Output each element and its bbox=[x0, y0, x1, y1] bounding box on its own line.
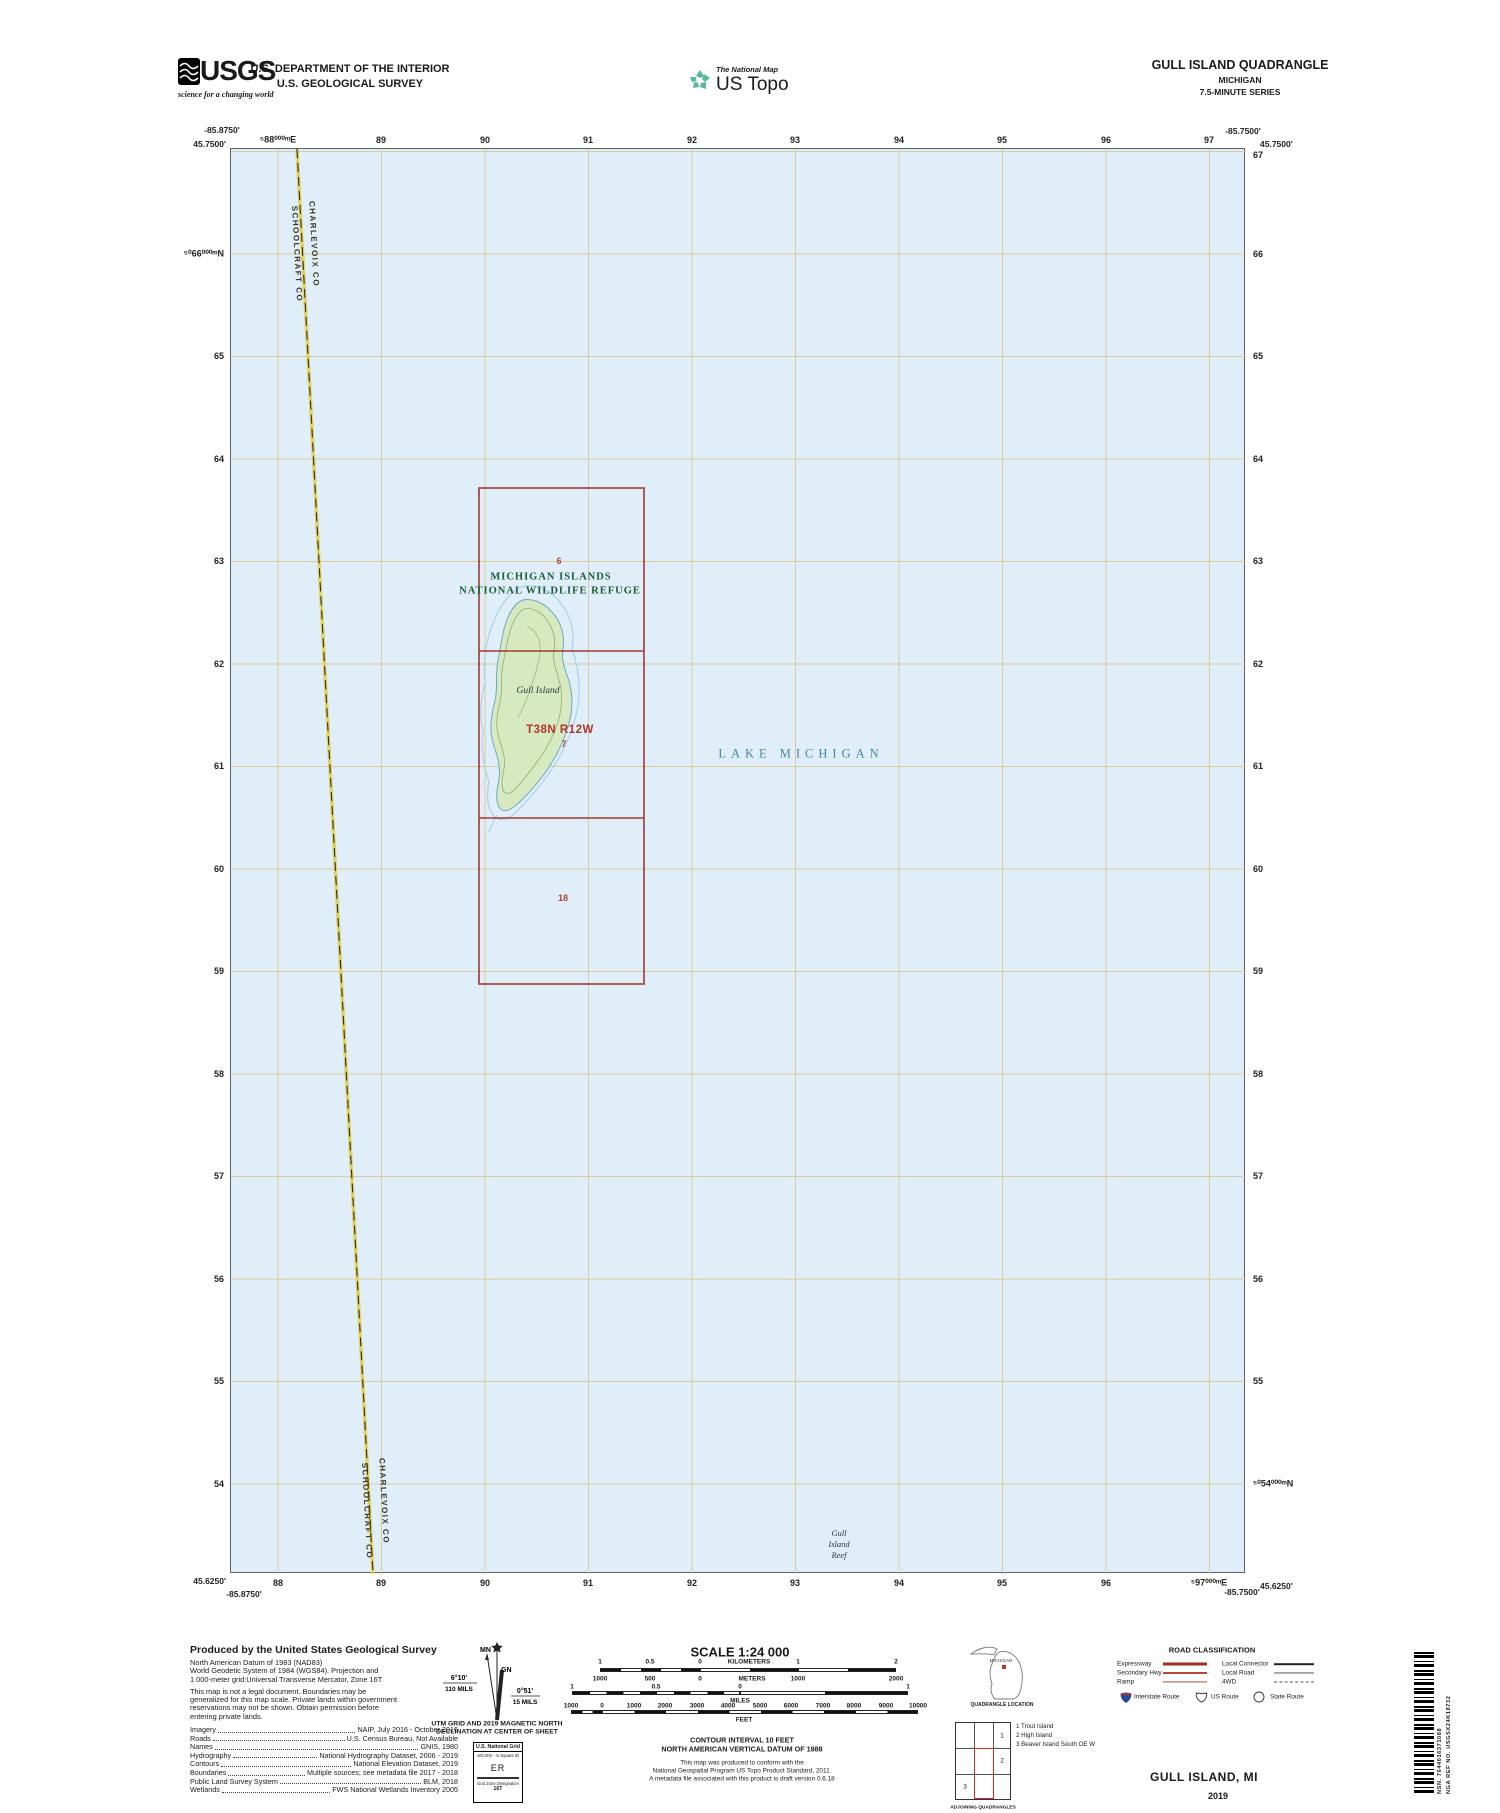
scale-label: 5000 bbox=[753, 1703, 767, 1710]
grid-tick: 64 bbox=[1253, 454, 1263, 464]
grid-tick: 57 bbox=[214, 1171, 224, 1181]
usng-square-id: ER bbox=[474, 1763, 522, 1773]
lake-michigan-label: LAKE MICHIGAN bbox=[718, 747, 883, 762]
scale-label: 0 bbox=[698, 1676, 702, 1683]
grid-tick: 63 bbox=[1253, 556, 1263, 566]
grid-tick: 96 bbox=[1101, 1578, 1111, 1588]
dept-line1: U.S. DEPARTMENT OF THE INTERIOR bbox=[250, 63, 449, 75]
grid-tick: 90 bbox=[480, 1578, 490, 1588]
grid-tick: 88 bbox=[273, 1578, 283, 1588]
grid-tick: 94 bbox=[894, 1578, 904, 1588]
grid-tick: 58 bbox=[214, 1069, 224, 1079]
road-sample-expressway bbox=[1163, 1663, 1207, 1666]
scale-label: 10000 bbox=[909, 1703, 927, 1710]
scale-label: METERS bbox=[738, 1676, 765, 1683]
corner-tr-lon: -85.7500' bbox=[1225, 126, 1261, 136]
township-label: T38N R12W bbox=[526, 724, 594, 736]
grid-tick: 63 bbox=[214, 556, 224, 566]
adjoining-legend-3: 3 Beaver Island South OE W bbox=[1016, 1741, 1095, 1748]
section-7-label: 7 bbox=[561, 739, 566, 749]
adjoining-legend-1: 1 Trout Island bbox=[1016, 1723, 1054, 1730]
scale-label: 500 bbox=[645, 1676, 656, 1683]
grid-tick: 92 bbox=[687, 1578, 697, 1588]
grid-tick: 57 bbox=[1253, 1171, 1263, 1181]
reef-label-line2: Island bbox=[828, 1539, 849, 1549]
standard-note-line2: National Geospatial Program US Topo Prod… bbox=[653, 1768, 832, 1775]
quad-title: GULL ISLAND QUADRANGLE bbox=[1152, 58, 1329, 72]
legal-line: entering private lands. bbox=[190, 1713, 458, 1721]
grid-tick: ⁵97⁰⁰⁰ᵐE bbox=[1191, 1578, 1227, 1589]
road-label-ramp: Ramp bbox=[1117, 1679, 1134, 1686]
gn-degrees: 0°51' bbox=[517, 1687, 533, 1695]
grid-tick: 65 bbox=[214, 351, 224, 361]
scale-unit-feet: FEET bbox=[736, 1717, 753, 1724]
dept-line2: U.S. GEOLOGICAL SURVEY bbox=[250, 78, 449, 90]
gn-mils: 15 MILS bbox=[513, 1699, 538, 1706]
adjoining-num-3: 3 bbox=[963, 1784, 967, 1791]
grid-tick: 55 bbox=[214, 1376, 224, 1386]
corner-bl-lat: 45.6250' bbox=[193, 1576, 226, 1586]
map-body: MICHIGAN ISLANDS NATIONAL WILDLIFE REFUG… bbox=[230, 148, 1245, 1573]
vertical-datum-note: NORTH AMERICAN VERTICAL DATUM OF 1988 bbox=[661, 1745, 822, 1754]
grid-tick: 62 bbox=[214, 659, 224, 669]
scale-label: 1000 bbox=[564, 1703, 578, 1710]
grid-tick: 58 bbox=[1253, 1069, 1263, 1079]
standard-note-line3: A metadata file associated with this pro… bbox=[649, 1776, 834, 1783]
adjoining-quads-caption: ADJOINING QUADRANGLES bbox=[950, 1806, 1016, 1811]
adjoining-num-2: 2 bbox=[1000, 1758, 1004, 1765]
grid-tick: 61 bbox=[214, 761, 224, 771]
scalebar-feet-right bbox=[602, 1710, 918, 1714]
scale-label: 7000 bbox=[816, 1703, 830, 1710]
scale-label: 3000 bbox=[690, 1703, 704, 1710]
scale-label: 0 bbox=[738, 1684, 742, 1691]
sheet-name: GULL ISLAND, MI bbox=[1150, 1770, 1258, 1784]
scale-label: 6000 bbox=[784, 1703, 798, 1710]
road-sample-local-road bbox=[1274, 1672, 1314, 1673]
current-quad-outline bbox=[974, 1748, 994, 1799]
grid-tick: 59 bbox=[1253, 966, 1263, 976]
sheet-year: 2019 bbox=[1208, 1791, 1228, 1801]
mn-mils: 110 MILS bbox=[445, 1686, 473, 1693]
scale-label: KILOMETERS bbox=[728, 1659, 771, 1666]
quad-state: MICHIGAN bbox=[1152, 75, 1329, 85]
quad-series: 7.5-MINUTE SERIES bbox=[1152, 87, 1329, 97]
scale-label: 0 bbox=[698, 1659, 702, 1666]
grid-tick: 56 bbox=[214, 1274, 224, 1284]
mn-label: MN bbox=[480, 1647, 491, 1654]
quadrangle-location-diagram: MICHIGAN bbox=[965, 1642, 1037, 1704]
grid-tick: 97 bbox=[1204, 135, 1214, 145]
usng-zone: 16T bbox=[474, 1786, 522, 1792]
grid-tick: 65 bbox=[1253, 351, 1263, 361]
national-map-tagline: The National Map bbox=[716, 66, 789, 74]
section-18-label: 18 bbox=[558, 893, 568, 903]
grid-tick: 93 bbox=[790, 1578, 800, 1588]
road-label-secondary: Secondary Hwy bbox=[1117, 1670, 1162, 1677]
grid-tick: ⁵⁰54⁰⁰⁰ᵐN bbox=[1253, 1479, 1293, 1490]
scale-label: 9000 bbox=[879, 1703, 893, 1710]
road-label-local-road: Local Road bbox=[1222, 1670, 1254, 1677]
scale-label: 1 bbox=[598, 1659, 602, 1666]
road-label-expressway: Expressway bbox=[1117, 1661, 1151, 1668]
credit-row: RoadsU.S. Census Bureau, Not Available bbox=[190, 1735, 458, 1744]
declination-caption2: DECLINATION AT CENTER OF SHEET bbox=[436, 1729, 558, 1736]
scale-label: 4000 bbox=[721, 1703, 735, 1710]
road-sample-secondary bbox=[1163, 1672, 1207, 1674]
grid-north-bar bbox=[497, 1670, 502, 1720]
grid-tick: 95 bbox=[997, 135, 1007, 145]
scale-label: 0.5 bbox=[645, 1659, 654, 1666]
usng-box: U.S. National Grid 100,000 - m Square ID… bbox=[473, 1742, 523, 1803]
grid-tick: 66 bbox=[1253, 249, 1263, 259]
ustopo-pinwheel-icon bbox=[688, 68, 712, 92]
grid-tick: ⁵88⁰⁰⁰ᵐE bbox=[260, 135, 296, 146]
grid-tick: 60 bbox=[214, 864, 224, 874]
scale-title: SCALE 1:24 000 bbox=[691, 1645, 790, 1660]
credit-value: FWS National Wetlands Inventory 2005 bbox=[332, 1786, 458, 1795]
scalebar-feet-left bbox=[571, 1710, 602, 1714]
data-credits: ImageryNAIP, July 2016 - October 2016 Ro… bbox=[190, 1726, 458, 1795]
us-route-shield-icon bbox=[1195, 1691, 1208, 1703]
declination-caption1: UTM GRID AND 2019 MAGNETIC NORTH bbox=[431, 1721, 562, 1728]
credit-label: Wetlands bbox=[190, 1786, 220, 1795]
grid-tick: 95 bbox=[997, 1578, 1007, 1588]
state-route-circle-icon bbox=[1253, 1691, 1265, 1703]
scale-label: 1 bbox=[796, 1659, 800, 1666]
quadrangle-location-caption: QUADRANGLE LOCATION bbox=[971, 1702, 1034, 1708]
scale-label: 1000 bbox=[791, 1676, 805, 1683]
ustopo-logo: The National Map US Topo bbox=[688, 66, 789, 94]
corner-bl-lon: -85.8750' bbox=[226, 1589, 262, 1599]
usng-subtitle: 100,000 - m Square ID bbox=[474, 1753, 522, 1758]
section-6-label: 6 bbox=[556, 556, 561, 566]
scale-label: 2 bbox=[894, 1659, 898, 1666]
grid-tick: 61 bbox=[1253, 761, 1263, 771]
corner-tl-lat: 45.7500' bbox=[193, 139, 226, 149]
road-sample-4wd bbox=[1274, 1682, 1314, 1683]
grid-tick: 54 bbox=[214, 1479, 224, 1489]
ustopo-brand: US Topo bbox=[716, 75, 789, 94]
grid-tick: 96 bbox=[1101, 135, 1111, 145]
barcode bbox=[1414, 1652, 1434, 1794]
scale-label: 2000 bbox=[658, 1703, 672, 1710]
mn-degrees: 6°10' bbox=[451, 1674, 467, 1682]
quad-title-block: GULL ISLAND QUADRANGLE MICHIGAN 7.5-MINU… bbox=[1152, 58, 1329, 97]
corner-br-lat: 45.6250' bbox=[1260, 1581, 1293, 1591]
scale-label: 0 bbox=[600, 1703, 604, 1710]
grid-tick: 59 bbox=[214, 966, 224, 976]
grid-tick: 64 bbox=[214, 454, 224, 464]
gn-label: GN bbox=[501, 1667, 512, 1674]
interstate-shield-icon bbox=[1120, 1691, 1132, 1703]
usgs-wave-icon bbox=[178, 58, 200, 85]
road-label-4wd: 4WD bbox=[1222, 1679, 1236, 1686]
grid-tick: 91 bbox=[583, 1578, 593, 1588]
map-drawing bbox=[231, 149, 1246, 1574]
adjoining-legend-2: 2 High Island bbox=[1016, 1732, 1052, 1739]
grid-tick: 62 bbox=[1253, 659, 1263, 669]
scalebar-miles-left bbox=[572, 1691, 740, 1695]
grid-tick: 94 bbox=[894, 135, 904, 145]
scale-label: 1 bbox=[570, 1684, 574, 1691]
state-label: MICHIGAN bbox=[990, 1658, 1013, 1663]
datum-line: 1 000-meter grid:Universal Transverse Me… bbox=[190, 1676, 458, 1684]
adjoining-num-1: 1 bbox=[1000, 1733, 1004, 1740]
scalebar-km-left bbox=[600, 1668, 700, 1672]
grid-tick: 60 bbox=[1253, 864, 1263, 874]
road-classification-title: ROAD CLASSIFICATION bbox=[1169, 1646, 1256, 1655]
grid-tick: ⁵⁰66⁰⁰⁰ᵐN bbox=[184, 249, 224, 260]
road-label-local-connector: Local Connector bbox=[1222, 1661, 1269, 1668]
refuge-name-line2: NATIONAL WILDLIFE REFUGE bbox=[459, 586, 641, 597]
production-notes: Produced by the United States Geological… bbox=[190, 1644, 458, 1795]
scale-label: 0.5 bbox=[651, 1684, 660, 1691]
scale-label: 1 bbox=[906, 1684, 910, 1691]
road-sample-local-connector bbox=[1274, 1663, 1314, 1665]
standard-note-line1: This map was produced to conform with th… bbox=[680, 1760, 804, 1767]
utm-grid bbox=[231, 149, 1246, 1574]
nga-ref-number: NGA REF NO. USGSX24K18732 bbox=[1446, 1652, 1452, 1794]
reef-label-line1: Gull bbox=[831, 1528, 846, 1538]
usgs-tagline: science for a changing world bbox=[178, 90, 274, 99]
nsn-number: NSN. 7644016371088 bbox=[1437, 1652, 1443, 1794]
scale-label: 8000 bbox=[847, 1703, 861, 1710]
scalebar-km-right bbox=[700, 1668, 896, 1672]
road-sample-ramp bbox=[1163, 1681, 1207, 1682]
county-boundary-line bbox=[297, 149, 373, 1574]
scalebar-miles-right bbox=[740, 1691, 908, 1695]
shield-label-state-route: State Route bbox=[1270, 1694, 1304, 1701]
corner-tr-lat: 45.7500' bbox=[1260, 139, 1293, 149]
grid-tick: 89 bbox=[376, 1578, 386, 1588]
grid-tick: 90 bbox=[480, 135, 490, 145]
adjoining-quads-diagram: 1 2 3 bbox=[955, 1722, 1011, 1800]
magnetic-north-arrow bbox=[485, 1654, 489, 1660]
produced-by-title: Produced by the United States Geological… bbox=[190, 1644, 458, 1656]
grid-tick: 92 bbox=[687, 135, 697, 145]
usng-title: U.S. National Grid bbox=[474, 1743, 522, 1752]
grid-tick: 89 bbox=[376, 135, 386, 145]
usgs-topo-sheet: USGS science for a changing world U.S. D… bbox=[0, 0, 1500, 1813]
scale-label: 1000 bbox=[627, 1703, 641, 1710]
scale-label: 2000 bbox=[889, 1676, 903, 1683]
credit-row: WetlandsFWS National Wetlands Inventory … bbox=[190, 1786, 458, 1795]
refuge-name-line1: MICHIGAN ISLANDS bbox=[490, 572, 611, 583]
grid-tick: 55 bbox=[1253, 1376, 1263, 1386]
grid-tick: 56 bbox=[1253, 1274, 1263, 1284]
department-heading: U.S. DEPARTMENT OF THE INTERIOR U.S. GEO… bbox=[250, 0, 449, 90]
island-name-label: Gull Island bbox=[516, 686, 559, 696]
corner-tl-lon: -85.8750' bbox=[204, 125, 240, 135]
grid-tick: 93 bbox=[790, 135, 800, 145]
grid-tick: 67 bbox=[1253, 150, 1263, 160]
contour-interval-note: CONTOUR INTERVAL 10 FEET bbox=[690, 1736, 794, 1745]
gull-island-shape bbox=[491, 599, 572, 810]
declination-diagram: MN GN 6°10' 110 MILS 0°51' 15 MILS bbox=[435, 1638, 565, 1728]
shield-label-us-route: US Route bbox=[1211, 1694, 1239, 1701]
scale-label: 1000 bbox=[593, 1676, 607, 1683]
shield-label-interstate: Interstate Route bbox=[1134, 1694, 1179, 1701]
grid-tick: 91 bbox=[583, 135, 593, 145]
quad-location-marker bbox=[1002, 1665, 1006, 1669]
reef-label-line3: Reef bbox=[831, 1550, 846, 1560]
corner-br-lon: -85.7500' bbox=[1224, 1587, 1260, 1597]
